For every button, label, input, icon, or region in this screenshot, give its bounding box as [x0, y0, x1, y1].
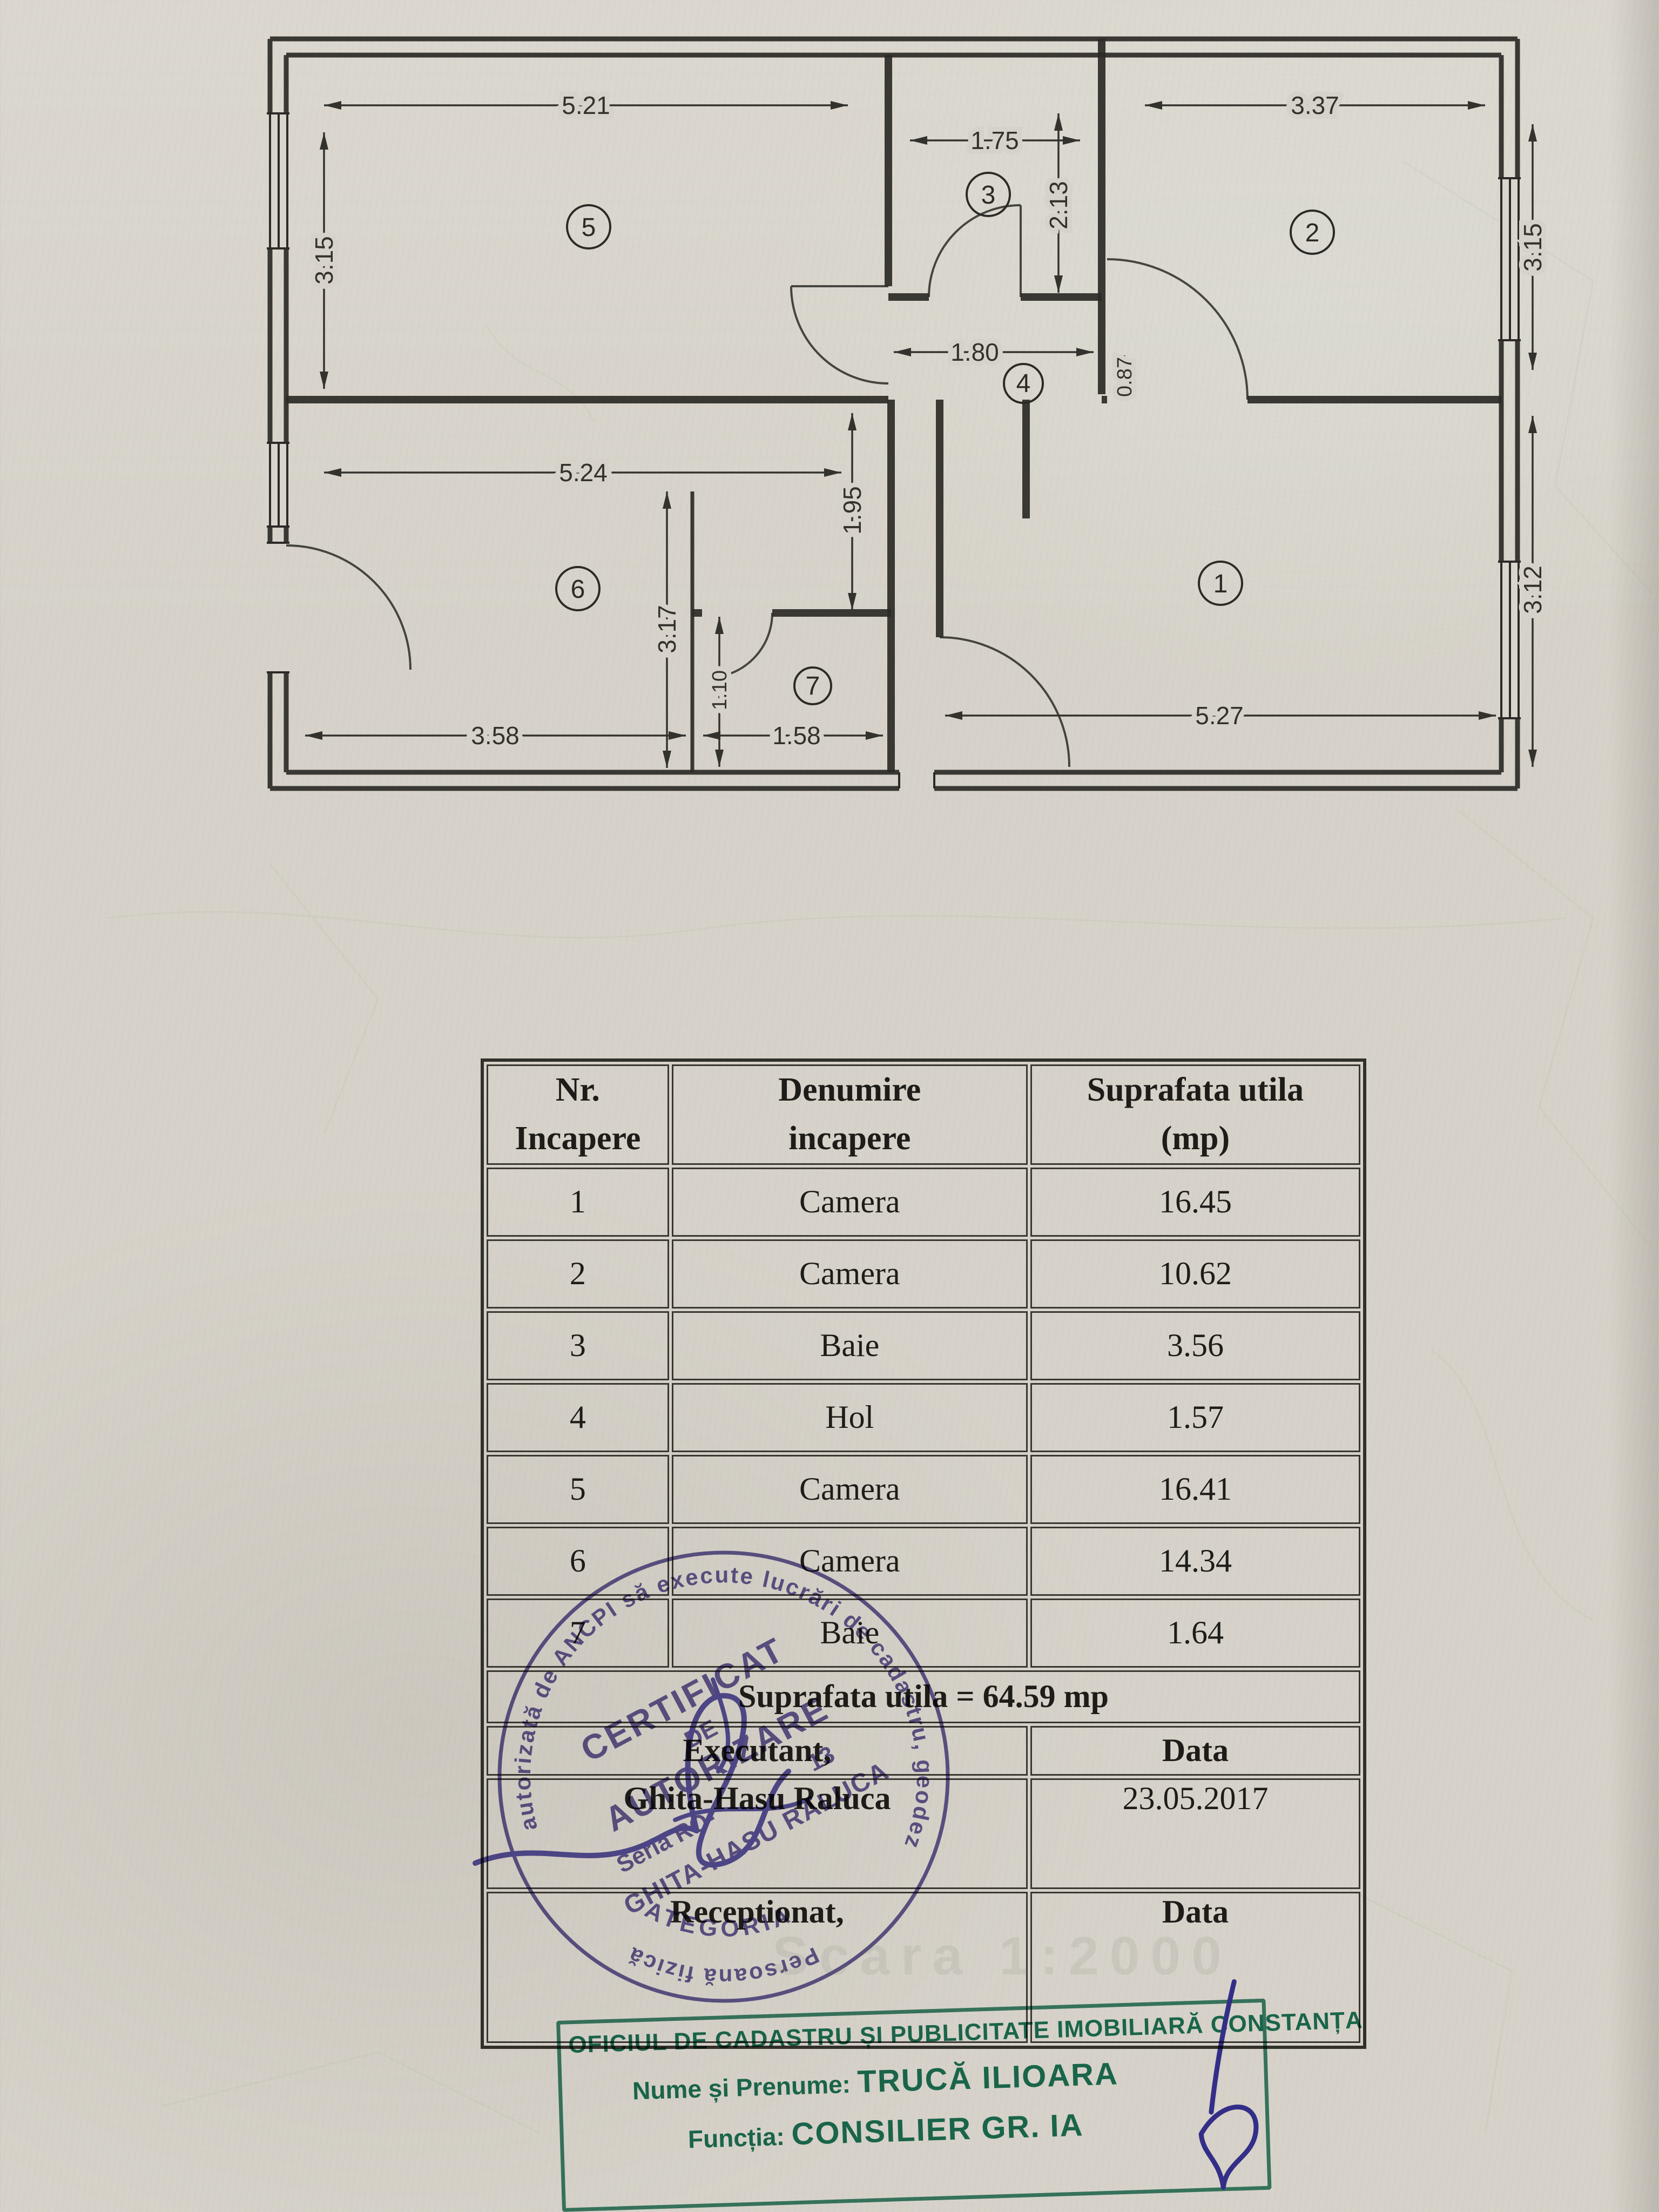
table-row: 3 Baie 3.56	[487, 1311, 1360, 1380]
interior-walls	[286, 39, 1501, 772]
dim-label: 3.15	[310, 236, 338, 285]
dimension-room7-height: 1.10	[709, 617, 731, 767]
dimension-middle-vertical: 1.95	[838, 413, 866, 610]
dim-label: 5.21	[562, 91, 610, 119]
header-line: Incapere	[488, 1115, 667, 1163]
dimension-room2-height: 3.15	[1519, 124, 1547, 370]
dimension-room6-width: 5.24	[324, 458, 841, 487]
cell-name: Camera	[672, 1239, 1028, 1309]
dim-label: 3.12	[1519, 565, 1547, 614]
cell-name: Camera	[672, 1455, 1028, 1524]
window-room6-left	[265, 443, 289, 527]
dim-label: 3.37	[1291, 91, 1339, 119]
dim-label: 3.17	[653, 605, 681, 653]
dim-label: 3.58	[471, 721, 520, 750]
room-number-2: 2	[1291, 211, 1334, 254]
table-row: 4 Hol 1.57	[487, 1383, 1360, 1452]
room-number-7: 7	[794, 667, 831, 704]
room-number-4: 4	[1004, 364, 1043, 403]
dimension-room2-width: 3.37	[1145, 91, 1485, 119]
header-line: Nr.	[488, 1066, 667, 1115]
svg-text:1: 1	[1213, 570, 1228, 598]
header-line: (mp)	[1032, 1115, 1359, 1163]
dim-label: 1.75	[970, 126, 1019, 154]
dim-label: 5.24	[559, 458, 608, 487]
dim-label: 2.13	[1044, 181, 1073, 230]
svg-text:6: 6	[571, 575, 585, 604]
date-value: 23.05.2017	[1030, 1778, 1360, 1889]
svg-text:3: 3	[981, 181, 996, 210]
svg-text:5: 5	[582, 213, 596, 242]
dim-label: 0.87	[1114, 357, 1136, 397]
room-number-6: 6	[556, 567, 599, 610]
dimension-hall-height: 0.87	[1114, 355, 1136, 399]
dimension-room7-width: 1.58	[703, 721, 883, 750]
cell-nr: 3	[487, 1311, 669, 1380]
cell-area: 10.62	[1030, 1239, 1360, 1309]
header-denumire: Denumire incapere	[672, 1064, 1028, 1165]
cell-area: 14.34	[1030, 1527, 1360, 1596]
cell-area: 16.45	[1030, 1168, 1360, 1237]
table-row: 5 Camera 16.41	[487, 1455, 1360, 1524]
dim-label: 3.15	[1519, 223, 1547, 272]
table-row: 2 Camera 10.62	[487, 1239, 1360, 1309]
window-room5-left	[265, 113, 289, 248]
cell-nr: 5	[487, 1455, 669, 1524]
cell-name: Hol	[672, 1383, 1028, 1452]
header-suprafata: Suprafata utila (mp)	[1030, 1064, 1360, 1165]
dimension-room1-width: 5.27	[945, 702, 1496, 730]
ghost-scale-text: Scara 1:2000	[772, 1925, 1232, 1987]
function-value: CONSILIER GR. IA	[791, 2107, 1084, 2152]
dim-label: 1.10	[709, 670, 731, 710]
cell-area: 1.64	[1030, 1599, 1360, 1668]
dimension-room6-bottom: 3.58	[305, 721, 686, 750]
cell-nr: 4	[487, 1383, 669, 1452]
room-number-3: 3	[967, 173, 1010, 216]
room-number-5: 5	[567, 205, 610, 248]
reception-signature	[1131, 1970, 1279, 2201]
table-header-row: Nr. Incapere Denumire incapere Suprafata…	[487, 1064, 1360, 1165]
dimension-room5-height: 3.15	[310, 132, 338, 389]
dim-label: 1.80	[950, 338, 999, 366]
header-line: Suprafata utila	[1032, 1066, 1359, 1115]
cell-nr: 1	[487, 1168, 669, 1237]
cell-name: Baie	[672, 1311, 1028, 1380]
name-value: TRUCĂ ILIOARA	[857, 2056, 1118, 2099]
cell-name: Camera	[672, 1168, 1028, 1237]
window-room1-right	[1498, 562, 1521, 718]
office-reception-stamp: OFICIUL DE CADASTRU ȘI PUBLICITATE IMOBI…	[556, 1999, 1271, 2212]
header-nr-incapere: Nr. Incapere	[487, 1064, 669, 1165]
table-row: 1 Camera 16.45	[487, 1168, 1360, 1237]
dim-label: 1.58	[772, 721, 821, 750]
cell-area: 1.57	[1030, 1383, 1360, 1452]
stamp-seria-suffix: 13	[803, 1741, 839, 1777]
svg-text:2: 2	[1305, 219, 1320, 247]
cell-area: 16.41	[1030, 1455, 1360, 1524]
data-label: Data	[1030, 1726, 1360, 1776]
function-label: Funcția:	[687, 2122, 785, 2154]
cell-nr: 2	[487, 1239, 669, 1309]
dim-label: 1.95	[838, 486, 866, 535]
header-line: incapere	[673, 1115, 1026, 1163]
dimension-room6-height: 3.17	[653, 491, 681, 768]
svg-text:4: 4	[1016, 369, 1031, 398]
dimension-room1-height: 3.12	[1519, 416, 1547, 767]
room-number-1: 1	[1199, 562, 1242, 605]
dimension-hall-width: 1.80	[894, 338, 1094, 366]
header-line: Denumire	[673, 1066, 1026, 1115]
dim-label: 5.27	[1195, 702, 1244, 730]
svg-text:7: 7	[806, 672, 820, 700]
dimension-room5-width: 5.21	[324, 91, 848, 119]
window-room2-right	[1498, 178, 1521, 340]
floor-plan: 5.21 3.15 1.75 2.13 3.37 3.15 1.80 0.87 …	[232, 16, 1550, 826]
dimension-room3-width: 1.75	[910, 126, 1080, 154]
cell-area: 3.56	[1030, 1311, 1360, 1380]
name-label: Nume și Prenume:	[632, 2070, 851, 2105]
scanned-cadastral-document: { "plan": { "room_labels": {"r1":"1","r2…	[0, 0, 1659, 2212]
